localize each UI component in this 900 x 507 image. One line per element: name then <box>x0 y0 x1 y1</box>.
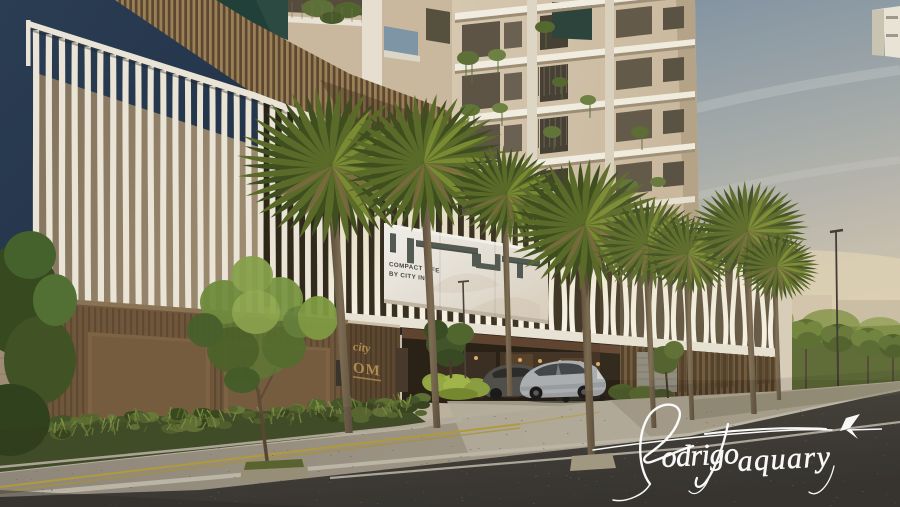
svg-text:odrigo: odrigo <box>661 437 740 474</box>
svg-text:city: city <box>353 339 371 355</box>
svg-text:aquary: aquary <box>737 440 833 478</box>
